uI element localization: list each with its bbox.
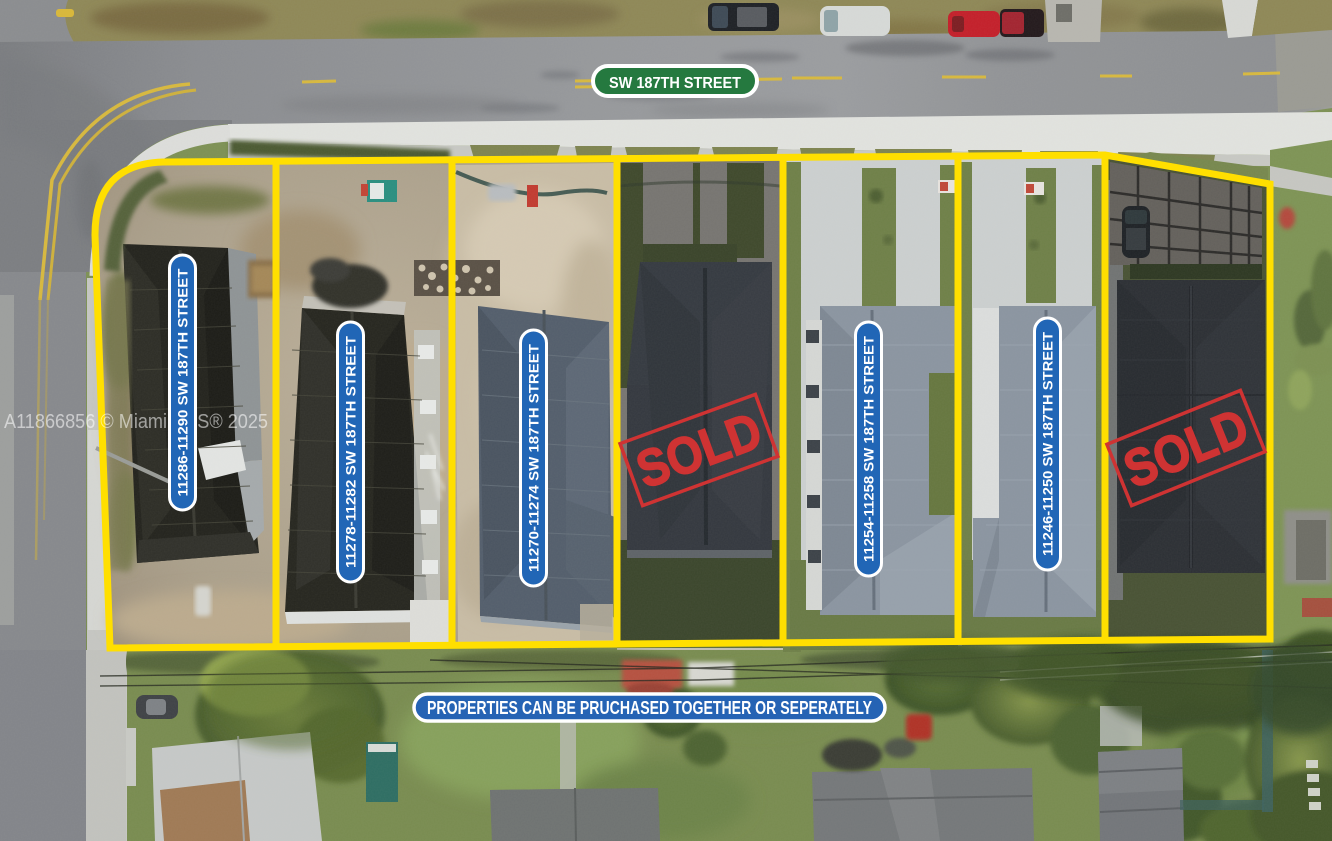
svg-text:11246-11250 SW 187TH STREET: 11246-11250 SW 187TH STREET xyxy=(1041,331,1056,556)
svg-text:SW 187TH STREET: SW 187TH STREET xyxy=(609,75,741,92)
svg-text:11286-11290 SW 187TH STREET: 11286-11290 SW 187TH STREET xyxy=(176,268,191,497)
svg-text:A11866856 © Miami MLS® 2025: A11866856 © Miami MLS® 2025 xyxy=(4,411,268,433)
svg-text:11270-11274 SW 187TH STREET: 11270-11274 SW 187TH STREET xyxy=(527,343,542,572)
svg-text:11254-11258 SW 187TH STREET: 11254-11258 SW 187TH STREET xyxy=(862,335,877,562)
svg-text:11278-11282 SW 187TH STREET: 11278-11282 SW 187TH STREET xyxy=(344,335,359,568)
svg-text:PROPERTIES CAN BE PRUCHASED TO: PROPERTIES CAN BE PRUCHASED TOGETHER OR … xyxy=(427,698,872,718)
